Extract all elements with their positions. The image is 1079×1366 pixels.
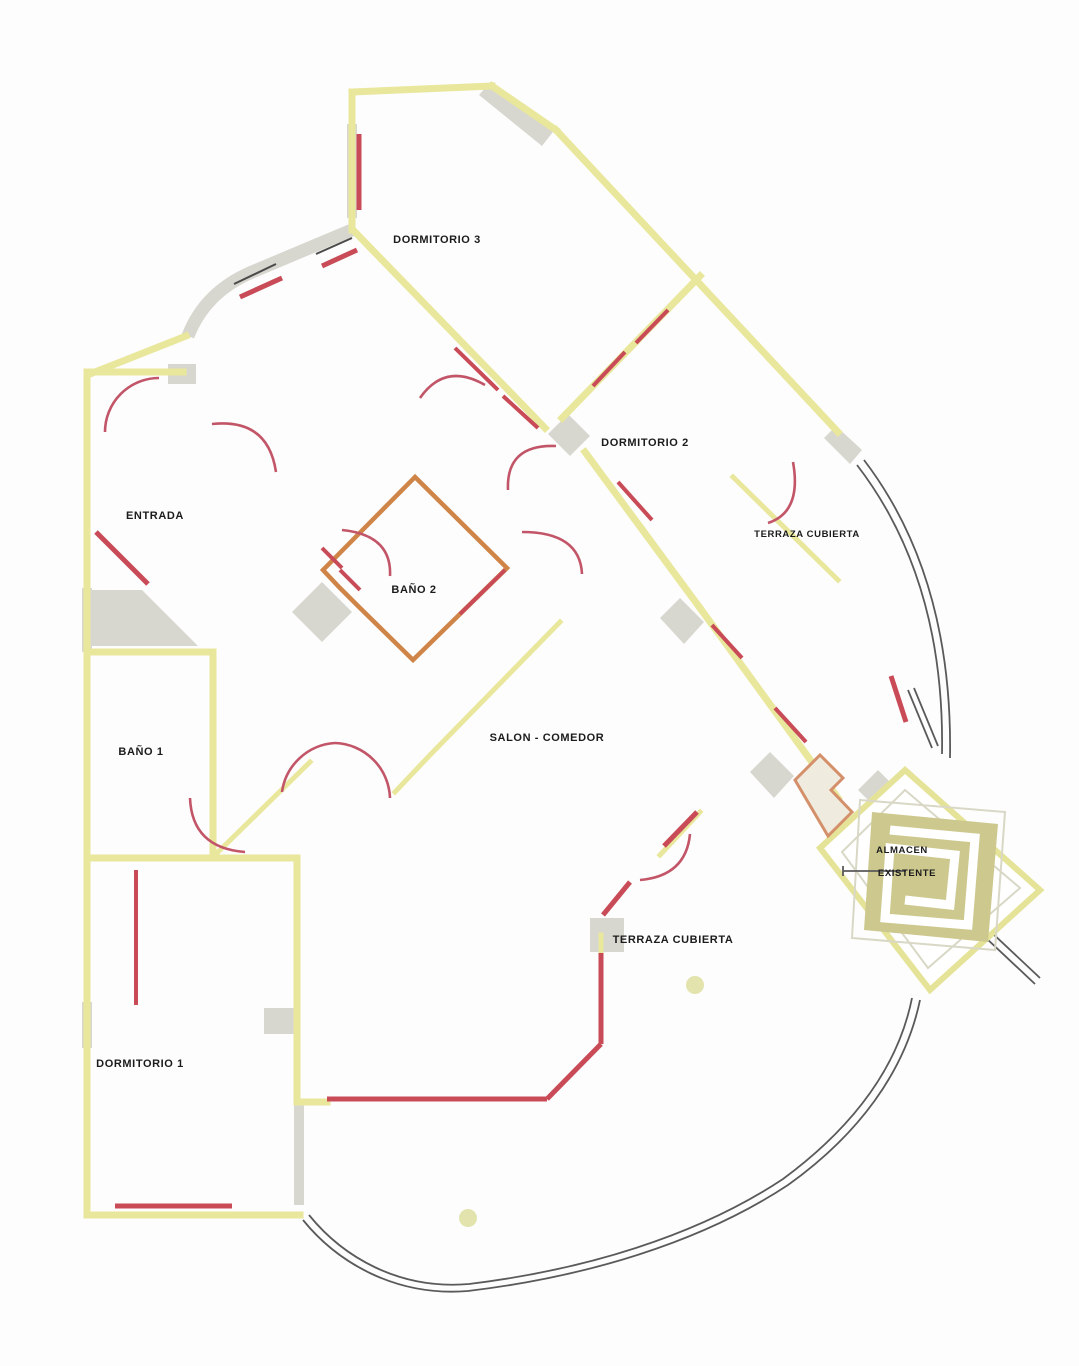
room-label-dormitorio-1: DORMITORIO 1 bbox=[96, 1058, 184, 1070]
dorm2-south-wall bbox=[585, 452, 700, 608]
salon-west-diagonal bbox=[215, 762, 310, 855]
salon-door-arc bbox=[522, 532, 582, 574]
room-label-dormitorio-2: DORMITORIO 2 bbox=[601, 437, 689, 449]
room-label-terraza-superior: TERRAZA CUBIERTA bbox=[754, 529, 860, 540]
terrace-arc-lower-outer bbox=[303, 1000, 920, 1292]
dorm2-door-arc bbox=[508, 446, 556, 490]
terrace-arc-upper-outer bbox=[864, 460, 950, 758]
floor-plan-page: DORMITORIO 3 DORMITORIO 2 ENTRADA BAÑO 2… bbox=[0, 0, 1079, 1366]
floor-plan-drawing: DORMITORIO 3 DORMITORIO 2 ENTRADA BAÑO 2… bbox=[0, 0, 1079, 1366]
terrace-pier bbox=[750, 752, 794, 798]
terrace-arc-upper-inner bbox=[857, 465, 942, 754]
dorm2-dorm3-divider bbox=[562, 276, 700, 418]
bath2-door-arc bbox=[342, 530, 390, 576]
room-label-terraza-inferior: TERRAZA CUBIERTA bbox=[613, 934, 734, 946]
salon-left-wall-gray bbox=[294, 1100, 304, 1205]
room-label-dormitorio-3: DORMITORIO 3 bbox=[393, 234, 481, 246]
entry-step-red-2 bbox=[340, 570, 360, 590]
entry-door-arc-2 bbox=[212, 423, 276, 472]
salon-nw-wall bbox=[395, 622, 560, 792]
room-label-salon-comedor: SALON - COMEDOR bbox=[490, 732, 605, 744]
terrace-column-1 bbox=[686, 976, 704, 994]
terrace-upper-red bbox=[664, 812, 697, 846]
entry-wedge-pier bbox=[90, 590, 198, 646]
divider-window-red-2 bbox=[593, 352, 625, 386]
room-label-almacen-2: EXISTENTE bbox=[878, 868, 936, 879]
divider-window-red-1 bbox=[636, 310, 668, 343]
bath2-red-edge bbox=[460, 570, 505, 614]
salon-left-sill bbox=[264, 1008, 298, 1034]
dorm3-top-wall bbox=[352, 86, 492, 92]
entry-door-leaf bbox=[96, 532, 148, 584]
room-label-almacen: ALMACEN bbox=[876, 845, 928, 856]
entry-door-arc bbox=[105, 378, 159, 432]
terrace-column-2 bbox=[459, 1209, 477, 1227]
salon-terrace-red-up bbox=[603, 882, 630, 915]
gray-piers-layer bbox=[82, 82, 898, 1205]
room-label-bano-1: BAÑO 1 bbox=[118, 745, 163, 758]
salon-fan-arc-1 bbox=[335, 743, 390, 798]
lines-layer bbox=[234, 238, 1040, 1292]
terrace-lower-door-arc bbox=[640, 834, 690, 880]
terrace-arc-lower-inner bbox=[309, 998, 912, 1285]
walls-layer bbox=[87, 86, 838, 1215]
curve-window-red-2 bbox=[322, 250, 357, 266]
bath2-walls bbox=[323, 477, 507, 660]
ne-corner-pier bbox=[824, 426, 862, 464]
east-window-line-1 bbox=[908, 690, 932, 748]
hall-nw-wall bbox=[355, 232, 545, 428]
dorm1-door-arc bbox=[190, 798, 245, 852]
terrace-link-red-1 bbox=[712, 625, 742, 658]
corner-pier bbox=[479, 82, 556, 146]
east-window-line-2 bbox=[914, 688, 938, 746]
salon-terrace-red-diag bbox=[547, 1044, 601, 1099]
east-wall-red bbox=[891, 676, 906, 722]
labels-layer: DORMITORIO 3 DORMITORIO 2 ENTRADA BAÑO 2… bbox=[96, 234, 936, 1070]
room-label-bano-2: BAÑO 2 bbox=[391, 583, 436, 596]
room-label-entrada: ENTRADA bbox=[126, 510, 184, 522]
hall-door-arc bbox=[420, 376, 485, 398]
bath2-room bbox=[323, 477, 507, 660]
